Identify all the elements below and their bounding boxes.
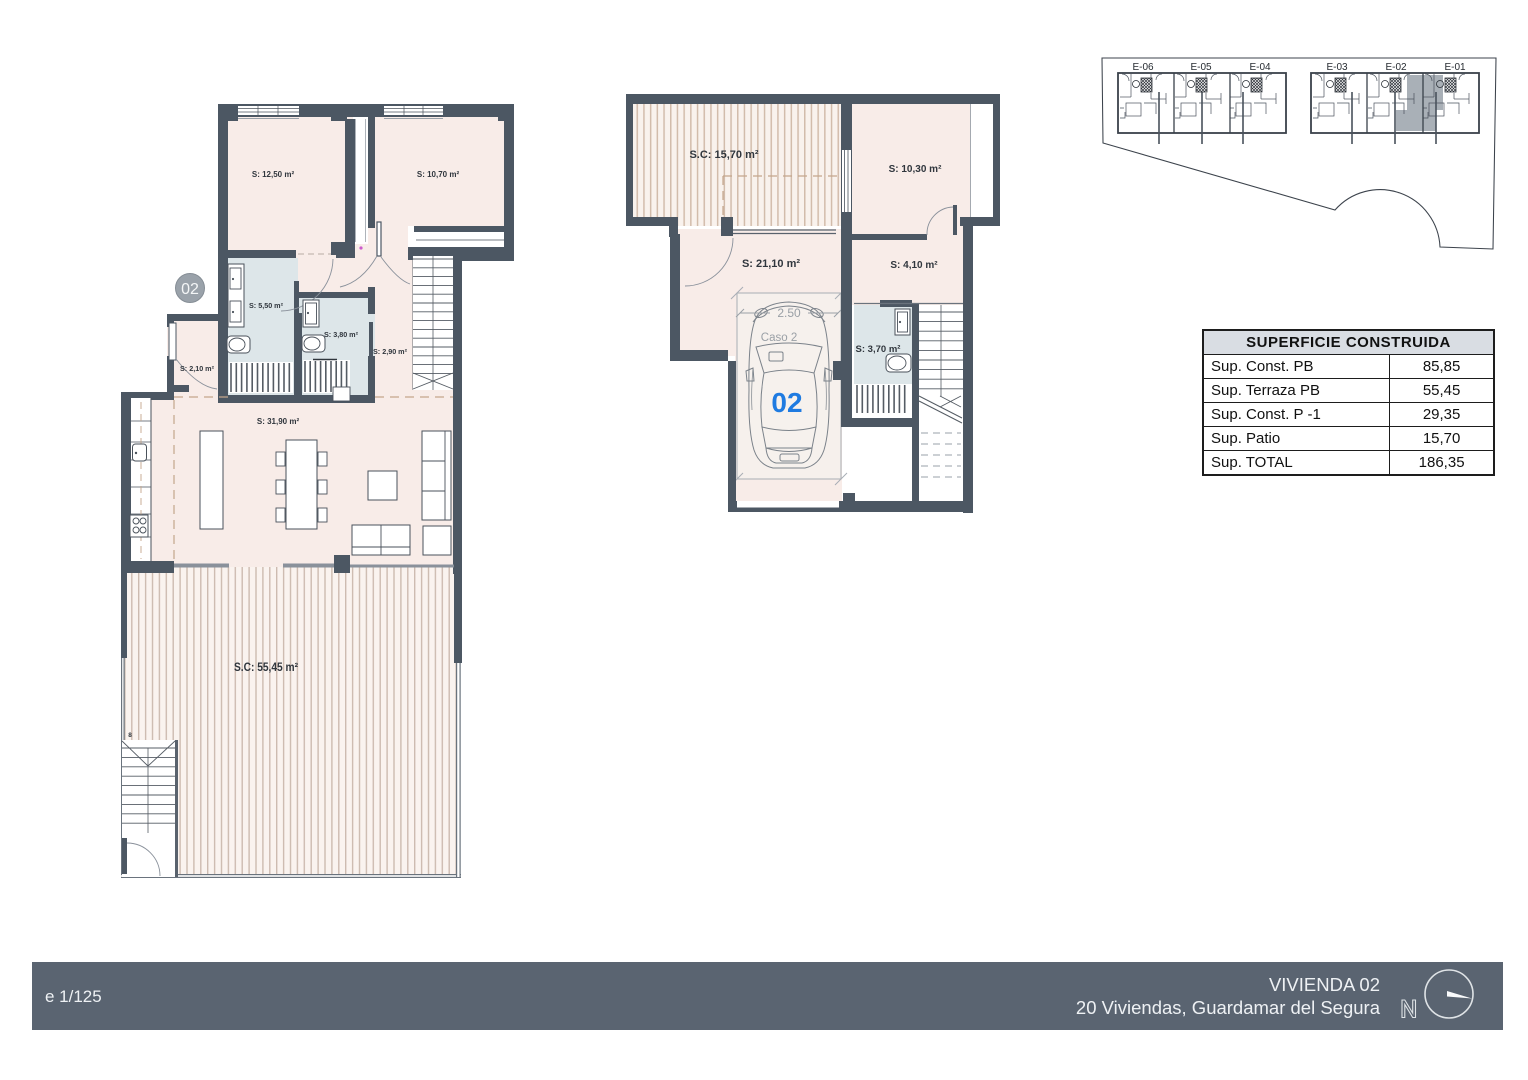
svg-text:S: 10,30 m²: S: 10,30 m² (889, 164, 942, 175)
svg-text:S: 2,10 m²: S: 2,10 m² (180, 364, 215, 373)
svg-text:E-01: E-01 (1444, 62, 1466, 73)
svg-text:S: 3,80 m²: S: 3,80 m² (324, 330, 359, 339)
svg-text:8: 8 (128, 732, 132, 739)
svg-text:S: 21,10 m²: S: 21,10 m² (742, 258, 800, 270)
svg-text:S: 3,70 m²: S: 3,70 m² (856, 344, 901, 355)
svg-text:S: 12,50 m²: S: 12,50 m² (252, 170, 295, 179)
svg-text:E-02: E-02 (1385, 62, 1407, 73)
svg-text:S.C: 55,45 m²: S.C: 55,45 m² (234, 660, 298, 674)
svg-text:S: 10,70 m²: S: 10,70 m² (417, 170, 460, 179)
svg-text:2.50: 2.50 (777, 306, 801, 320)
svg-text:E-04: E-04 (1249, 62, 1271, 73)
svg-text:S: 4,10 m²: S: 4,10 m² (890, 260, 938, 271)
svg-text:S: 31,90 m²: S: 31,90 m² (257, 417, 300, 426)
svg-text:E-05: E-05 (1190, 62, 1212, 73)
svg-text:S.C: 15,70 m²: S.C: 15,70 m² (689, 149, 758, 161)
svg-text:E-06: E-06 (1132, 62, 1154, 73)
svg-text:02: 02 (771, 387, 802, 418)
svg-text:Caso 2: Caso 2 (761, 332, 797, 344)
svg-text:S: 5,50 m²: S: 5,50 m² (249, 301, 284, 310)
svg-text:E-03: E-03 (1326, 62, 1348, 73)
svg-text:02: 02 (181, 281, 199, 298)
svg-text:S: 2,90 m²: S: 2,90 m² (373, 347, 408, 356)
